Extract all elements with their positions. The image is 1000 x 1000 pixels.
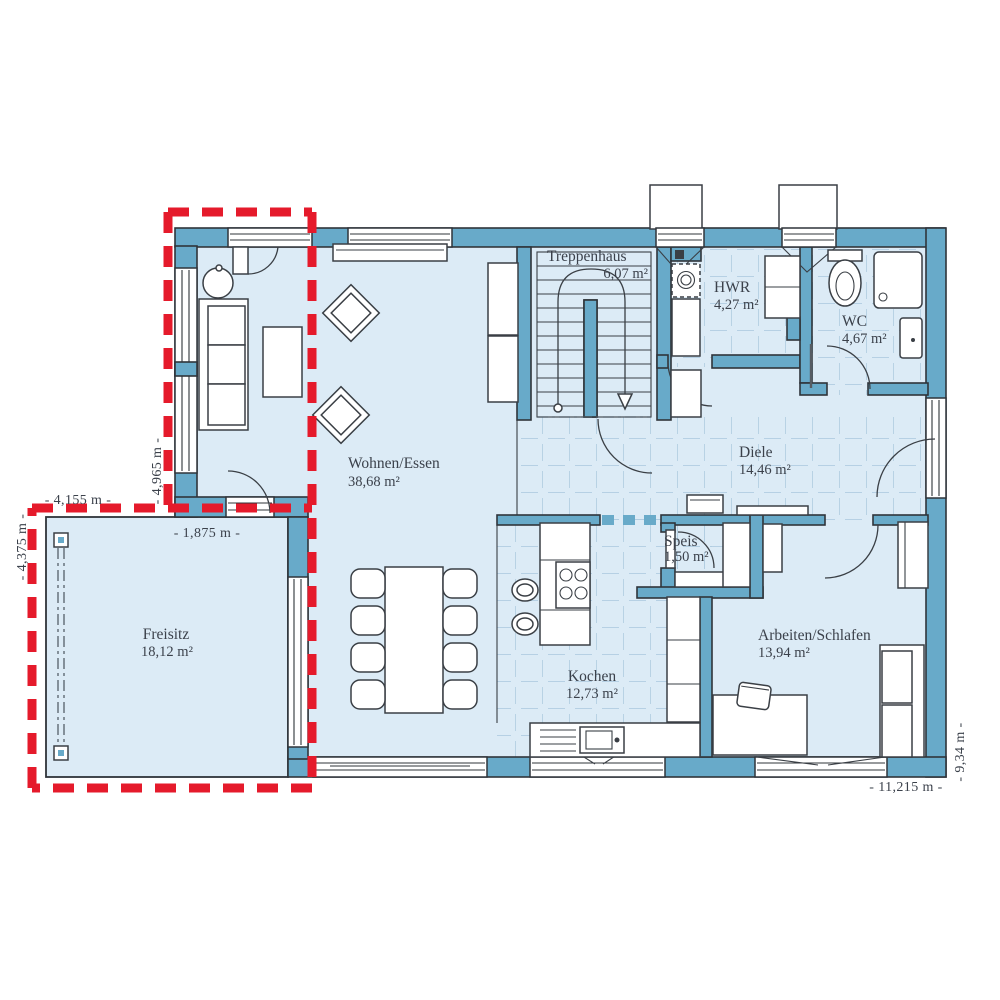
hwr-duct-core (675, 250, 684, 259)
dim-house-width: - 11,215 m - (869, 780, 943, 795)
bar-stool-symbol (517, 584, 533, 596)
exterior-wall-east (926, 228, 946, 777)
stair-start-marker (554, 404, 562, 412)
desk-chair-symbol (736, 682, 771, 710)
wardrobe-symbol (898, 522, 928, 588)
room-area-wc: 4,67 m² (842, 331, 887, 347)
cabinet-symbol (672, 299, 700, 356)
floor-plan-drawing: Wohnen/Essen 38,68 m² Treppenhaus 6,07 m… (0, 0, 1000, 1000)
dim-freisitz-width: - 4,155 m - (45, 493, 112, 508)
room-label-wc: WC (842, 313, 867, 330)
room-area-hwr: 4,27 m² (714, 297, 759, 313)
dim-house-depth: - 9,34 m - (953, 722, 968, 781)
toilet-symbol (829, 260, 861, 306)
cabinet-symbol (488, 263, 518, 335)
roof-blocks (650, 185, 837, 229)
wall-hwr-south-a (657, 355, 668, 368)
shelf-symbol (723, 523, 750, 587)
wall-hwr-south-b (712, 355, 800, 368)
sideboard-symbol (687, 495, 723, 513)
room-area-arbeiten: 13,94 m² (758, 645, 811, 661)
sofa-cushion (208, 384, 245, 425)
room-label-freisitz: Freisitz (143, 626, 190, 643)
room-label-speis: Speis (664, 533, 698, 550)
room-area-wohnen: 38,68 m² (348, 474, 401, 490)
chimney-block (779, 185, 837, 229)
wardrobe-symbol (671, 370, 701, 417)
sofa-cushion (208, 306, 245, 345)
dim-bay-height: - 4,965 m - (150, 438, 165, 505)
tall-cabinet-symbol (667, 597, 700, 722)
sofa-cushion (208, 345, 245, 384)
shower-symbol (874, 252, 922, 308)
room-label-hwr: HWR (714, 279, 751, 296)
room-area-treppenhaus: 6,07 m² (603, 266, 648, 282)
chimney-block (650, 185, 702, 229)
window-west-living (175, 268, 197, 473)
window-bedroom-south (755, 757, 887, 777)
dim-bay-width: - 1,875 m - (174, 526, 241, 541)
wall-stair-east (657, 247, 671, 420)
sliding-terrace-door (313, 757, 487, 777)
faucet-symbol (615, 738, 620, 743)
terrace-post-core (58, 750, 64, 756)
wall-kochen-arbeiten-divider (700, 597, 712, 757)
washbasin-symbol (900, 318, 922, 358)
window-west-terrace (288, 577, 308, 747)
washing-machine-symbol (672, 264, 700, 297)
dim-freisitz-height: - 4,375 m - (15, 514, 30, 581)
wall-stair-west (517, 247, 531, 420)
wall-wc-south-b (868, 383, 928, 395)
room-area-diele: 14,46 m² (739, 462, 792, 478)
sofa-cushion (882, 705, 912, 757)
cabinet-symbol (488, 336, 518, 402)
dining-table-symbol (385, 567, 443, 713)
bar-stool-symbol (517, 618, 533, 630)
room-area-speis: 1,50 m² (664, 549, 709, 565)
side-table-symbol (203, 268, 233, 298)
room-label-treppenhaus: Treppenhaus (547, 248, 627, 265)
shelf-symbol (675, 572, 730, 587)
room-label-arbeiten: Arbeiten/Schlafen (758, 627, 871, 644)
wardrobe-symbol (763, 524, 782, 572)
wall-speis-east (750, 515, 763, 598)
coffee-table-symbol (263, 327, 302, 397)
room-label-diele: Diele (739, 444, 773, 461)
door-leaf (233, 247, 248, 274)
cooktop-symbol (556, 562, 590, 608)
room-area-kochen: 12,73 m² (566, 686, 619, 702)
sofa-cushion (882, 651, 912, 703)
west-window-mullion (175, 362, 197, 376)
stair-spine-wall (584, 300, 597, 417)
room-area-freisitz: 18,12 m² (141, 644, 194, 660)
room-label-wohnen: Wohnen/Essen (348, 455, 440, 472)
lamp-symbol (216, 265, 222, 271)
floor-plan-canvas: Wohnen/Essen 38,68 m² Treppenhaus 6,07 m… (0, 0, 1000, 1000)
wall-wc-pilaster (787, 317, 800, 340)
room-label-kochen: Kochen (568, 668, 616, 685)
terrace-post-core (58, 537, 64, 543)
shelf-symbol (737, 506, 808, 515)
wall-wc-south-a (800, 383, 827, 395)
washbasin-tap (911, 338, 915, 342)
sideboard-symbol (333, 244, 447, 261)
